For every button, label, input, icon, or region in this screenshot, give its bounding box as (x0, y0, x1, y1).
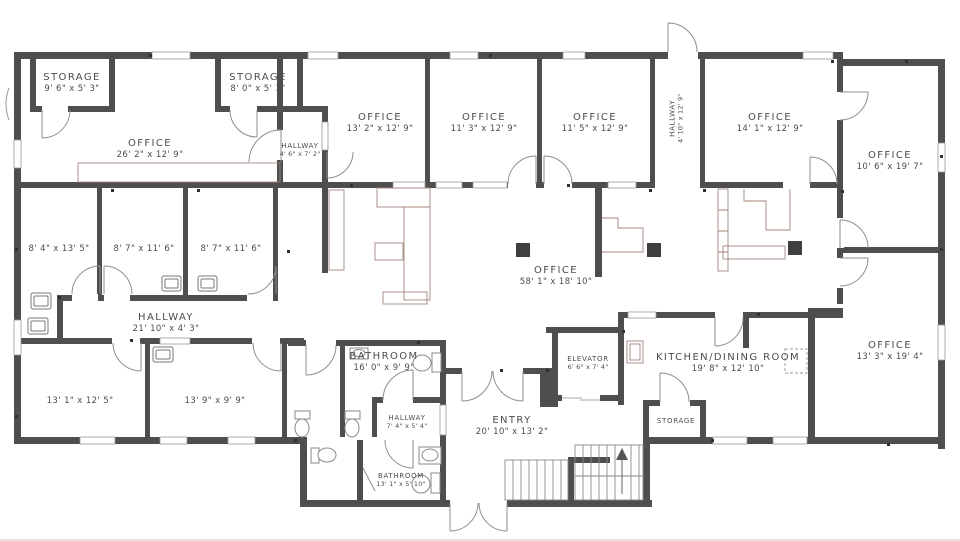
floor-plan-drawing (0, 0, 960, 541)
scan-mark (6, 88, 9, 120)
windows (14, 52, 945, 444)
sink-icon (419, 447, 441, 464)
stairs-up-arrow (616, 448, 628, 460)
toilet-icon (295, 411, 310, 437)
toilet-icon (413, 353, 441, 372)
sink-icon (350, 348, 368, 359)
bath-fixtures (295, 348, 441, 493)
dimension-ticks (15, 54, 943, 446)
toilet-icon (412, 473, 440, 493)
columns (516, 241, 802, 257)
toilet-icon (345, 411, 360, 437)
toilet-icon (311, 448, 336, 463)
wall-panels (28, 276, 217, 362)
floor-plan: STORAGE 9' 6" x 5' 3" STORAGE 8' 0" x 5'… (0, 0, 960, 541)
